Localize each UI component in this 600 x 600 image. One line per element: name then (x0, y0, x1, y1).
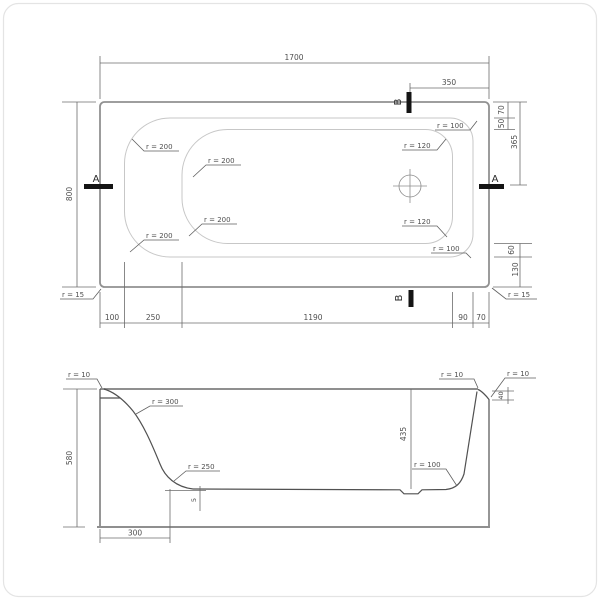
section-a-label-right: A (492, 174, 499, 185)
radius-inner-top-left: r = 200 (193, 157, 241, 177)
svg-text:r = 100: r = 100 (414, 461, 441, 469)
svg-text:r = 120: r = 120 (404, 218, 431, 226)
svg-text:r = 10: r = 10 (68, 371, 90, 379)
section-profile (100, 389, 489, 527)
radius-inner-bottom-right: r = 120 (402, 218, 447, 237)
dim-rim-step: 40 (492, 387, 514, 404)
svg-text:r = 300: r = 300 (152, 398, 179, 406)
radius-inner-top-right: r = 120 (402, 139, 446, 150)
svg-text:r = 100: r = 100 (433, 245, 460, 253)
radius-section-top-right-inner: r = 10 (439, 371, 478, 388)
svg-text:r = 10: r = 10 (507, 370, 529, 378)
dim-label-70-bottom: 70 (476, 313, 486, 322)
dim-label-5: 5 (190, 498, 198, 502)
dim-label-40: 40 (497, 391, 505, 399)
dim-label-1190: 1190 (303, 313, 322, 322)
dim-right-bottom-column: 60 130 (493, 244, 532, 288)
plan-radius-labels: r = 200 r = 200 r = 100 r = 120 r = 120 … (60, 121, 537, 299)
dim-label-800: 800 (65, 187, 74, 202)
dim-label-365: 365 (510, 135, 519, 150)
section-a-label-left: A (93, 174, 100, 185)
svg-text:r = 250: r = 250 (188, 463, 215, 471)
radius-inner-bottom-left: r = 200 (189, 216, 237, 236)
dim-label-300: 300 (128, 529, 143, 538)
dim-label-70-top: 70 (497, 105, 506, 115)
radius-section-top-left: r = 10 (66, 371, 102, 388)
radius-outer-top-left: r = 200 (132, 139, 179, 151)
radius-rim-corner-left: r = 15 (60, 289, 101, 299)
dim-overall-depth: 800 (62, 102, 96, 287)
radius-outer-top-right: r = 100 (435, 121, 477, 130)
svg-text:r = 200: r = 200 (146, 232, 173, 240)
dim-right-top-column: 70 50 365 (493, 102, 527, 185)
dim-label-350: 350 (442, 78, 457, 87)
dim-label-435: 435 (399, 427, 408, 442)
section-radius-labels: r = 10 r = 300 r = 250 r = 100 r = 10 r … (66, 370, 536, 486)
drain-symbol (393, 169, 427, 203)
dim-floor-drop: 5 (165, 486, 206, 511)
dim-inner-depth: 435 (399, 389, 411, 489)
dim-section-b-offset: 350 (410, 78, 489, 93)
dim-bottom-row: 100 250 1190 90 70 (100, 262, 489, 328)
dim-overall-height: 580 (63, 389, 97, 527)
svg-text:r = 200: r = 200 (208, 157, 235, 165)
svg-text:r = 120: r = 120 (404, 142, 431, 150)
section-b-bar-top (407, 92, 412, 113)
card-border (4, 4, 597, 597)
dim-label-60: 60 (507, 245, 516, 255)
section-b-label-top: B (393, 98, 404, 105)
section-b-label-bottom: B (394, 294, 405, 301)
dim-label-1700: 1700 (284, 53, 303, 62)
technical-drawing-page: 1700 350 800 70 50 365 (0, 0, 600, 600)
section-b-bar-bottom (409, 290, 414, 307)
bathtub-technical-drawing: 1700 350 800 70 50 365 (0, 0, 600, 600)
dim-label-250: 250 (146, 313, 161, 322)
dim-label-130: 130 (511, 262, 520, 277)
svg-text:r = 10: r = 10 (441, 371, 463, 379)
svg-text:r = 15: r = 15 (508, 291, 530, 299)
radius-rim-corner-right: r = 15 (492, 288, 537, 299)
section-view: 580 435 40 5 300 r (63, 370, 536, 543)
svg-text:r = 200: r = 200 (146, 143, 173, 151)
radius-section-wall-top: r = 300 (136, 398, 183, 414)
radius-section-floor-right: r = 100 (412, 461, 457, 486)
plan-view: 1700 350 800 70 50 365 (60, 53, 537, 328)
radius-outer-bottom-left: r = 200 (130, 232, 179, 252)
dim-label-100: 100 (105, 313, 120, 322)
dim-overall-width: 1700 (100, 53, 489, 99)
svg-text:r = 100: r = 100 (437, 122, 464, 130)
dim-label-90: 90 (458, 313, 468, 322)
dim-flat-floor-offset: 300 (100, 489, 170, 543)
svg-text:r = 15: r = 15 (62, 291, 84, 299)
dim-label-50-top: 50 (497, 119, 506, 129)
radius-section-wall-bottom: r = 250 (174, 463, 220, 481)
svg-text:r = 200: r = 200 (204, 216, 231, 224)
dim-label-580: 580 (65, 451, 74, 466)
